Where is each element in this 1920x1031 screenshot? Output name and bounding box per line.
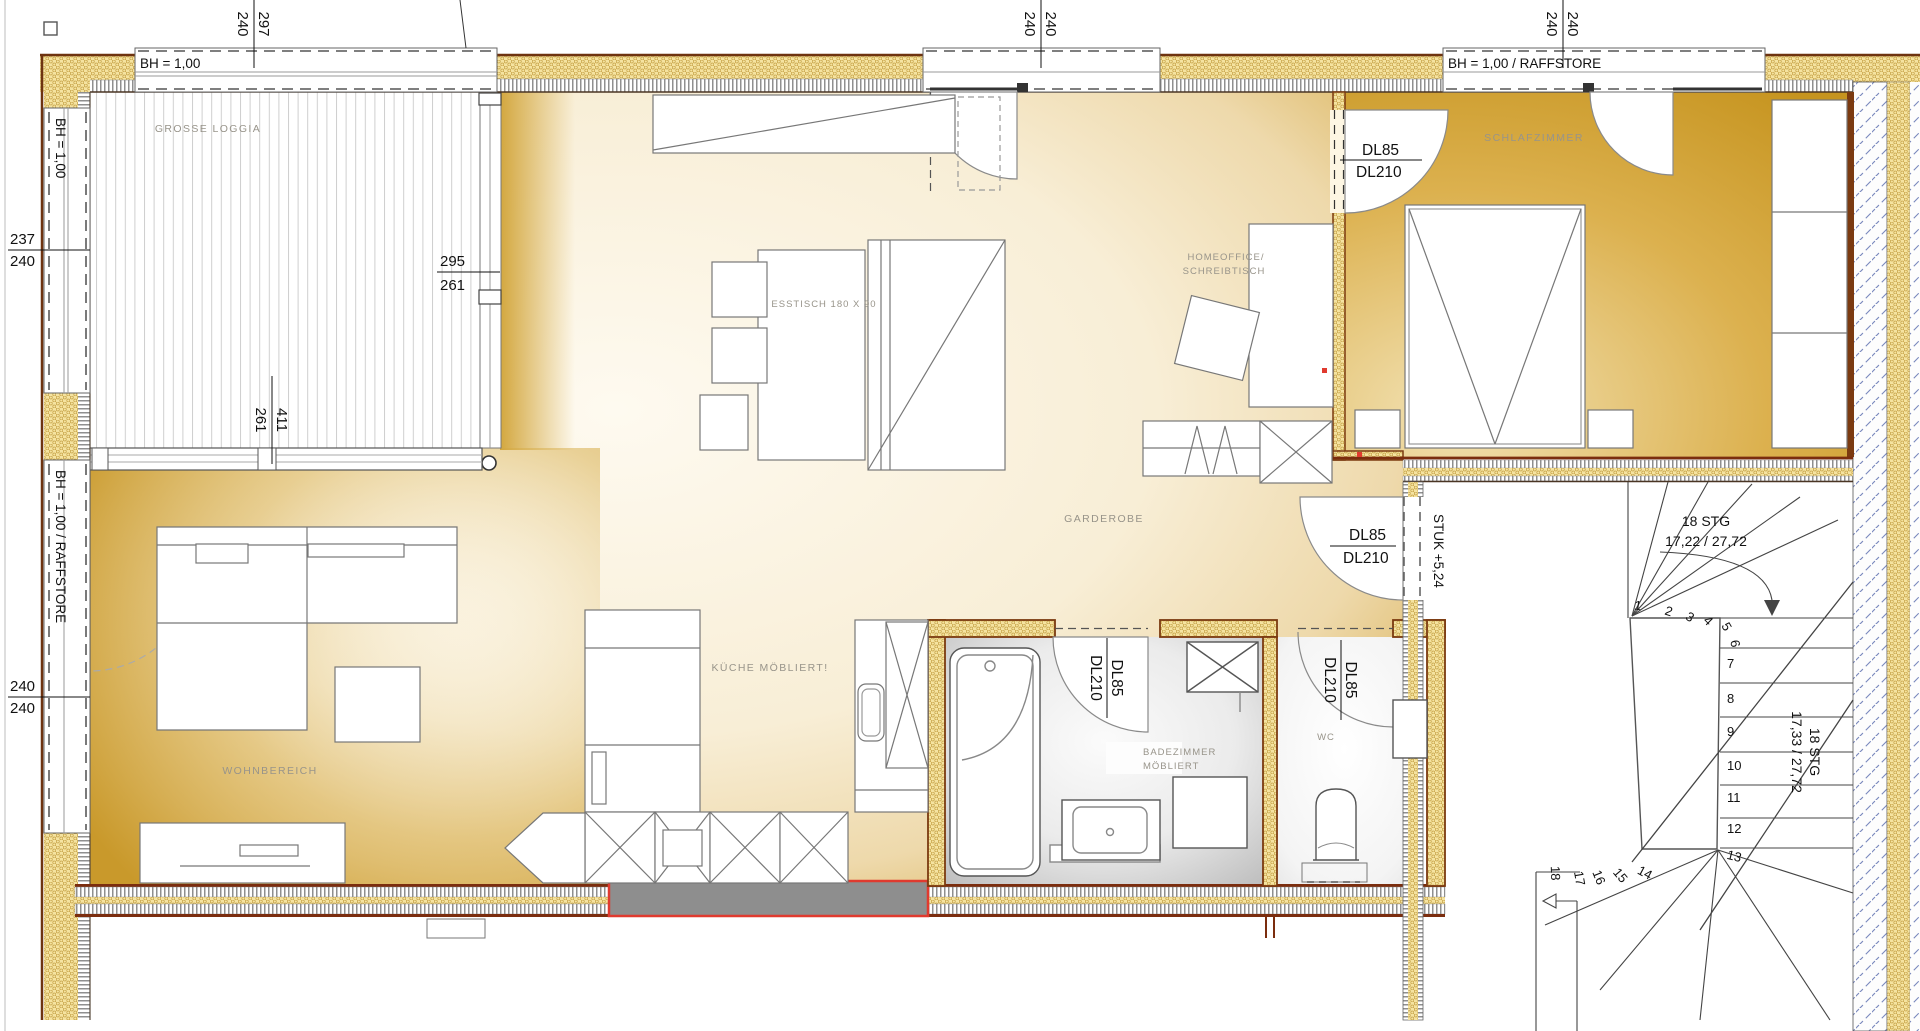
tv — [240, 845, 298, 856]
svg-text:DL210: DL210 — [1087, 655, 1104, 701]
chair — [712, 328, 767, 383]
stair-label-top-2: 17,22 / 27,72 — [1665, 533, 1747, 549]
window-label: BH = 1,00 / RAFFSTORE — [53, 470, 68, 623]
nightstand — [1588, 410, 1633, 448]
svg-text:240: 240 — [1042, 11, 1059, 36]
room-label-bad-1: BADEZIMMER — [1143, 747, 1216, 758]
svg-text:DL85: DL85 — [1362, 142, 1399, 159]
chair — [700, 395, 748, 450]
svg-text:237: 237 — [10, 231, 35, 248]
room-label-garderobe: GARDEROBE — [1064, 513, 1144, 525]
svg-text:297: 297 — [255, 11, 272, 36]
toilet — [1316, 789, 1356, 860]
svg-text:240: 240 — [10, 253, 35, 270]
room-label-wohnbereich: WOHNBEREICH — [222, 765, 317, 777]
window-schlafzimmer-top: BH = 1,00 / RAFFSTORE — [1443, 48, 1765, 92]
step-number: 11 — [1727, 790, 1741, 805]
wall-highlight-element — [609, 881, 928, 916]
room-label-loggia: GROSSE LOGGIA — [155, 123, 261, 135]
column-icon — [482, 456, 496, 470]
step-number: 12 — [1727, 821, 1741, 836]
floor-plan-page: BH = 1,00 BH = 1,00 / RAFFSTORE BH = 1,0… — [0, 0, 1920, 1031]
svg-text:DL85: DL85 — [1108, 659, 1125, 696]
step-number: 17 — [1571, 870, 1588, 887]
nightstand — [1355, 410, 1400, 448]
step-number: 18 — [1548, 866, 1563, 881]
window-loggia-top: BH = 1,00 — [135, 48, 497, 92]
room-label-kueche: KÜCHE MÖBLIERT! — [711, 662, 828, 674]
window-label: BH = 1,00 — [53, 118, 68, 178]
wc-basin — [1393, 700, 1427, 758]
stair-label-side-2: 17,33 / 27,72 — [1789, 711, 1805, 793]
svg-text:261: 261 — [252, 407, 269, 432]
stair-landing-void — [1630, 618, 1720, 849]
sofa-cushion — [196, 544, 248, 563]
window-wohnbereich-left: BH = 1,00 / RAFFSTORE — [44, 460, 90, 833]
svg-text:240: 240 — [10, 700, 35, 717]
svg-text:240: 240 — [234, 11, 251, 36]
dining-table — [758, 250, 865, 460]
shower — [1173, 777, 1247, 848]
room-label-wc: WC — [1317, 732, 1335, 743]
step-number: 10 — [1727, 758, 1741, 773]
window-label: BH = 1,00 — [140, 56, 200, 71]
window-label: BH = 1,00 / RAFFSTORE — [1448, 56, 1601, 71]
svg-text:DL85: DL85 — [1349, 527, 1386, 544]
wall-marker — [1322, 368, 1327, 373]
stair-label-side-1: 18 STG — [1807, 728, 1823, 776]
room-label-homeoffice-1: HOMEOFFICE/ — [1188, 252, 1265, 263]
legend-square-icon — [44, 22, 57, 35]
svg-text:240: 240 — [1543, 11, 1560, 36]
step-number: 7 — [1727, 656, 1734, 671]
step-number: 8 — [1727, 691, 1734, 706]
svg-text:DL210: DL210 — [1343, 550, 1389, 567]
wall-marker — [1357, 452, 1362, 457]
kitchen-counter — [585, 812, 848, 883]
stair-label-top-1: 18 STG — [1682, 513, 1730, 529]
svg-text:DL210: DL210 — [1321, 657, 1338, 703]
svg-text:295: 295 — [440, 253, 465, 270]
room-label-homeoffice-2: SCHREIBTISCH — [1183, 266, 1266, 277]
svg-text:261: 261 — [440, 277, 465, 294]
wardrobe — [1772, 100, 1847, 448]
table-label: ESSTISCH 180 X 90 — [771, 299, 876, 310]
svg-text:411: 411 — [273, 408, 290, 432]
svg-text:240: 240 — [1021, 11, 1038, 36]
svg-text:240: 240 — [1564, 11, 1581, 36]
svg-text:DL210: DL210 — [1356, 164, 1402, 181]
bed — [1405, 205, 1585, 448]
reference-line — [460, 0, 466, 48]
bathtub — [950, 648, 1040, 876]
step-number: 9 — [1727, 724, 1734, 739]
room-label-bad-2: MÖBLIERT — [1143, 761, 1199, 772]
stair-level-label: STUK +5,24 — [1431, 514, 1446, 588]
room-label-schlafzimmer: SCHLAFZIMMER — [1484, 132, 1584, 144]
svg-text:DL85: DL85 — [1342, 661, 1359, 698]
svg-text:240: 240 — [10, 678, 35, 695]
chair — [712, 262, 767, 317]
windows-top: BH = 1,00 BH = 1,00 / RAFFSTORE — [135, 48, 1765, 92]
floor-plan-drawing: BH = 1,00 BH = 1,00 / RAFFSTORE BH = 1,0… — [0, 0, 1920, 1031]
windows-left: BH = 1,00 BH = 1,00 / RAFFSTORE — [44, 108, 90, 833]
sofa-cushion — [308, 544, 404, 557]
coffee-table — [335, 667, 420, 742]
